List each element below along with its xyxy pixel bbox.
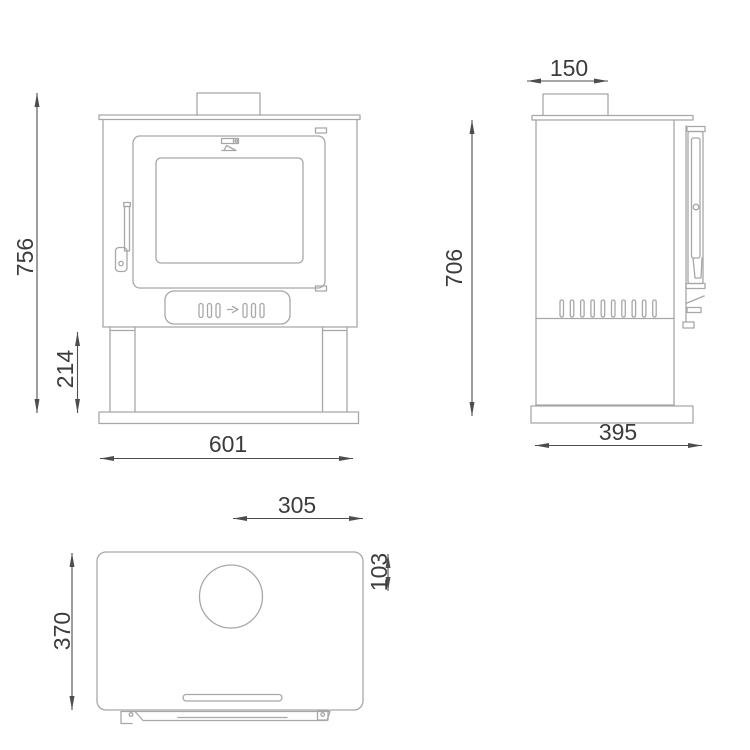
front-view bbox=[99, 93, 360, 424]
top-view bbox=[97, 552, 363, 724]
hinge-left-plan bbox=[121, 712, 136, 724]
ash-vent-control bbox=[165, 291, 290, 324]
door-frame-foot bbox=[683, 322, 694, 328]
latch-tab bbox=[687, 308, 701, 313]
slider-indicator bbox=[228, 307, 239, 313]
left-leg bbox=[110, 327, 135, 412]
top-plate-plan bbox=[97, 552, 363, 710]
dim-label-overall-width: 601 bbox=[209, 431, 247, 457]
vent-slots bbox=[199, 304, 264, 318]
right-leg bbox=[323, 327, 348, 412]
hinge-right-plan bbox=[318, 711, 329, 720]
door-handle bbox=[116, 203, 131, 272]
dim-label-overall-depth: 395 bbox=[599, 419, 637, 445]
dim-label-leg-height: 214 bbox=[52, 350, 78, 389]
air-control-slider bbox=[222, 139, 239, 151]
top-plate bbox=[99, 115, 360, 120]
dim-label-flue-centre-from-back: 103 bbox=[366, 553, 392, 591]
side-vent-slots bbox=[560, 300, 656, 317]
dim-label-body-height: 706 bbox=[441, 249, 467, 287]
base-plate bbox=[99, 412, 359, 424]
top-plate-side bbox=[532, 116, 693, 121]
door-handle-side bbox=[692, 138, 703, 278]
dim-label-flue-centre-to-right: 305 bbox=[278, 492, 316, 518]
flue-collar-side bbox=[543, 94, 608, 115]
dim-label-top-depth: 370 bbox=[49, 612, 75, 650]
dim-label-overall-height: 756 bbox=[12, 238, 38, 276]
side-view bbox=[531, 94, 705, 423]
flue-outlet-circle bbox=[200, 565, 263, 628]
stove-dimension-diagram: 756 214 601 150 706 395 305 103 370 bbox=[0, 0, 750, 750]
door-glass bbox=[156, 158, 303, 263]
flue-collar bbox=[197, 93, 260, 115]
latch-diagonal bbox=[687, 296, 704, 303]
door-front-edge bbox=[135, 712, 330, 721]
heat-slot bbox=[183, 695, 282, 702]
stove-door bbox=[133, 136, 325, 288]
dim-label-flue-collar-width: 150 bbox=[550, 55, 588, 81]
air-control-lever bbox=[222, 146, 236, 151]
diagram-canvas: 756 214 601 150 706 395 305 103 370 bbox=[0, 0, 750, 750]
door-hinge-top bbox=[316, 128, 327, 133]
